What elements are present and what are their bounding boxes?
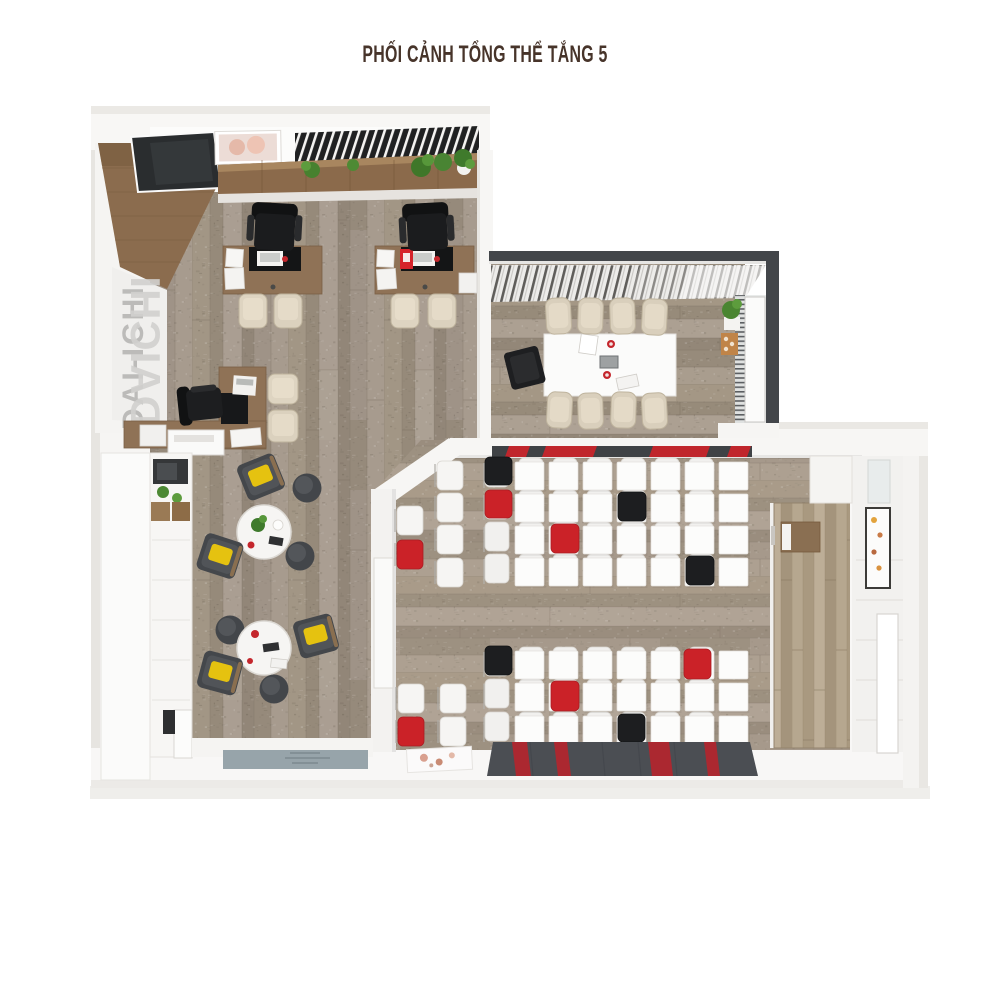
svg-text:DAICHI: DAICHI xyxy=(122,275,169,426)
svg-text:PHỐI CẢNH TỔNG THỂ TẮNG 5: PHỐI CẢNH TỔNG THỂ TẮNG 5 xyxy=(362,39,607,67)
